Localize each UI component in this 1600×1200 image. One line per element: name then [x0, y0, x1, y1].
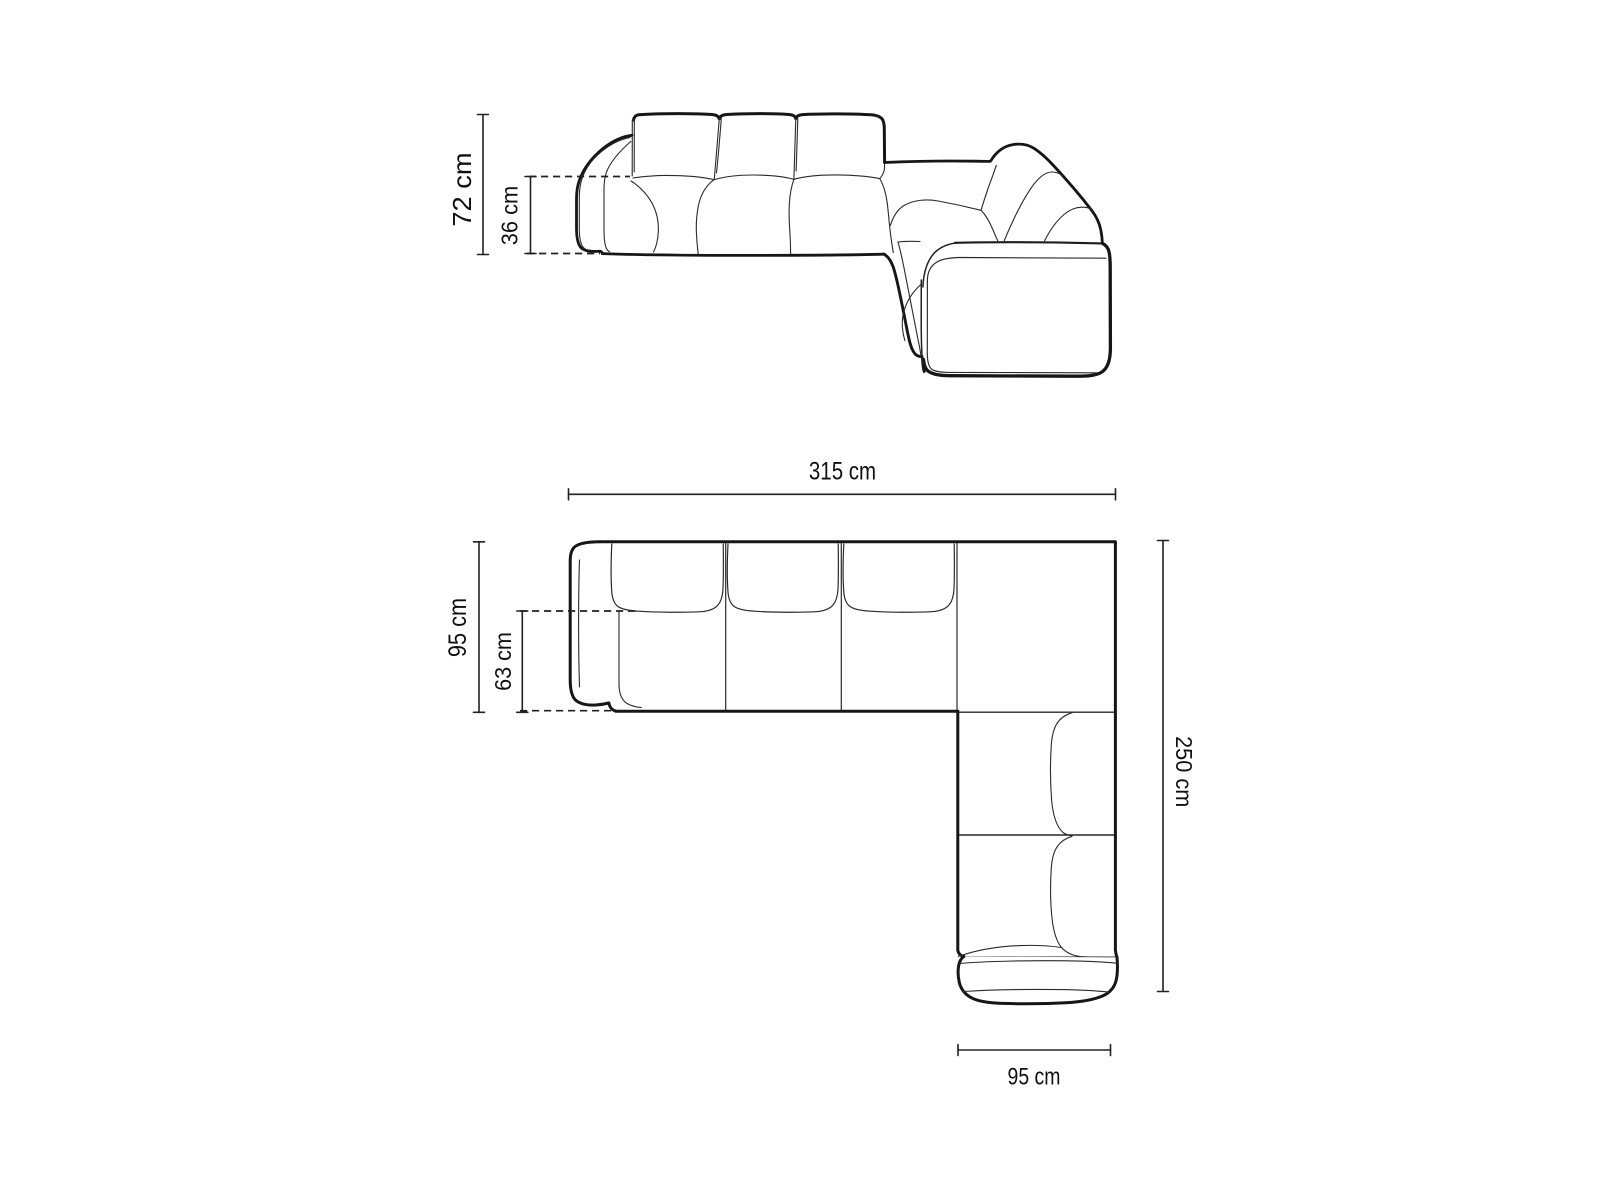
svg-text:95 cm: 95 cm: [444, 598, 472, 657]
svg-text:315 cm: 315 cm: [809, 457, 876, 485]
svg-text:250 cm: 250 cm: [1171, 736, 1197, 807]
svg-text:63 cm: 63 cm: [490, 632, 516, 691]
svg-text:36 cm: 36 cm: [496, 186, 523, 246]
svg-text:95 cm: 95 cm: [1008, 1063, 1061, 1090]
svg-text:72 cm: 72 cm: [448, 152, 477, 226]
